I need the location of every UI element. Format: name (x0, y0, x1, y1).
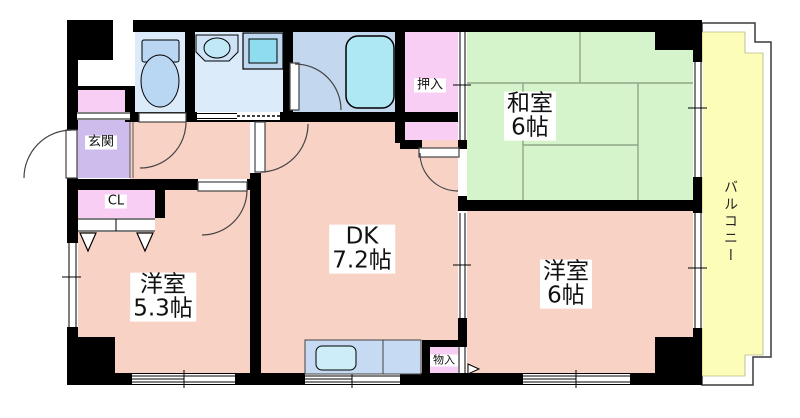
washbasin-icon (196, 35, 238, 61)
storage-name: 押入 (414, 79, 446, 93)
label-oshiire: 押入 (414, 78, 446, 93)
kitchen-sink-icon (305, 340, 421, 374)
toilet-icon (141, 40, 179, 107)
label-monoire: 物入 (430, 354, 458, 367)
closet-name: CL (105, 195, 127, 209)
label-closet: CL (105, 194, 127, 209)
room-label-western-5-3: 洋室 5.3帖 (130, 273, 196, 322)
room-name: 洋室 (540, 260, 592, 284)
room-name: 洋室 (130, 273, 196, 297)
storage-name: 物入 (430, 355, 458, 367)
room-size: 6帖 (540, 284, 592, 308)
label-genkan: 玄関 (85, 135, 117, 150)
room-name: DK (329, 225, 395, 249)
room-label-western-6: 洋室 6帖 (540, 260, 592, 309)
room-label-dk: DK 7.2帖 (329, 225, 395, 274)
entrance-door (24, 130, 77, 178)
room-size: 6帖 (504, 116, 556, 140)
room-size: 5.3帖 (130, 297, 196, 321)
washroom-entry (197, 112, 280, 120)
room-name: 和室 (504, 92, 556, 116)
entrance-name: 玄関 (85, 136, 117, 150)
shoe-cabinet (77, 112, 130, 120)
room-size: 7.2帖 (329, 249, 395, 273)
label-balcony: バルコニー (720, 180, 740, 265)
meter-box-area (77, 90, 125, 112)
washing-machine-pan-icon (243, 33, 283, 69)
room-label-washitsu: 和室 6帖 (504, 92, 556, 141)
bathtub-icon (346, 36, 394, 108)
hallway-area (130, 120, 250, 179)
floor-plan-drawing (0, 0, 800, 418)
floor-plan: 和室 6帖 DK 7.2帖 洋室 5.3帖 洋室 6帖 押入 玄関 CL 物入 … (0, 0, 800, 418)
